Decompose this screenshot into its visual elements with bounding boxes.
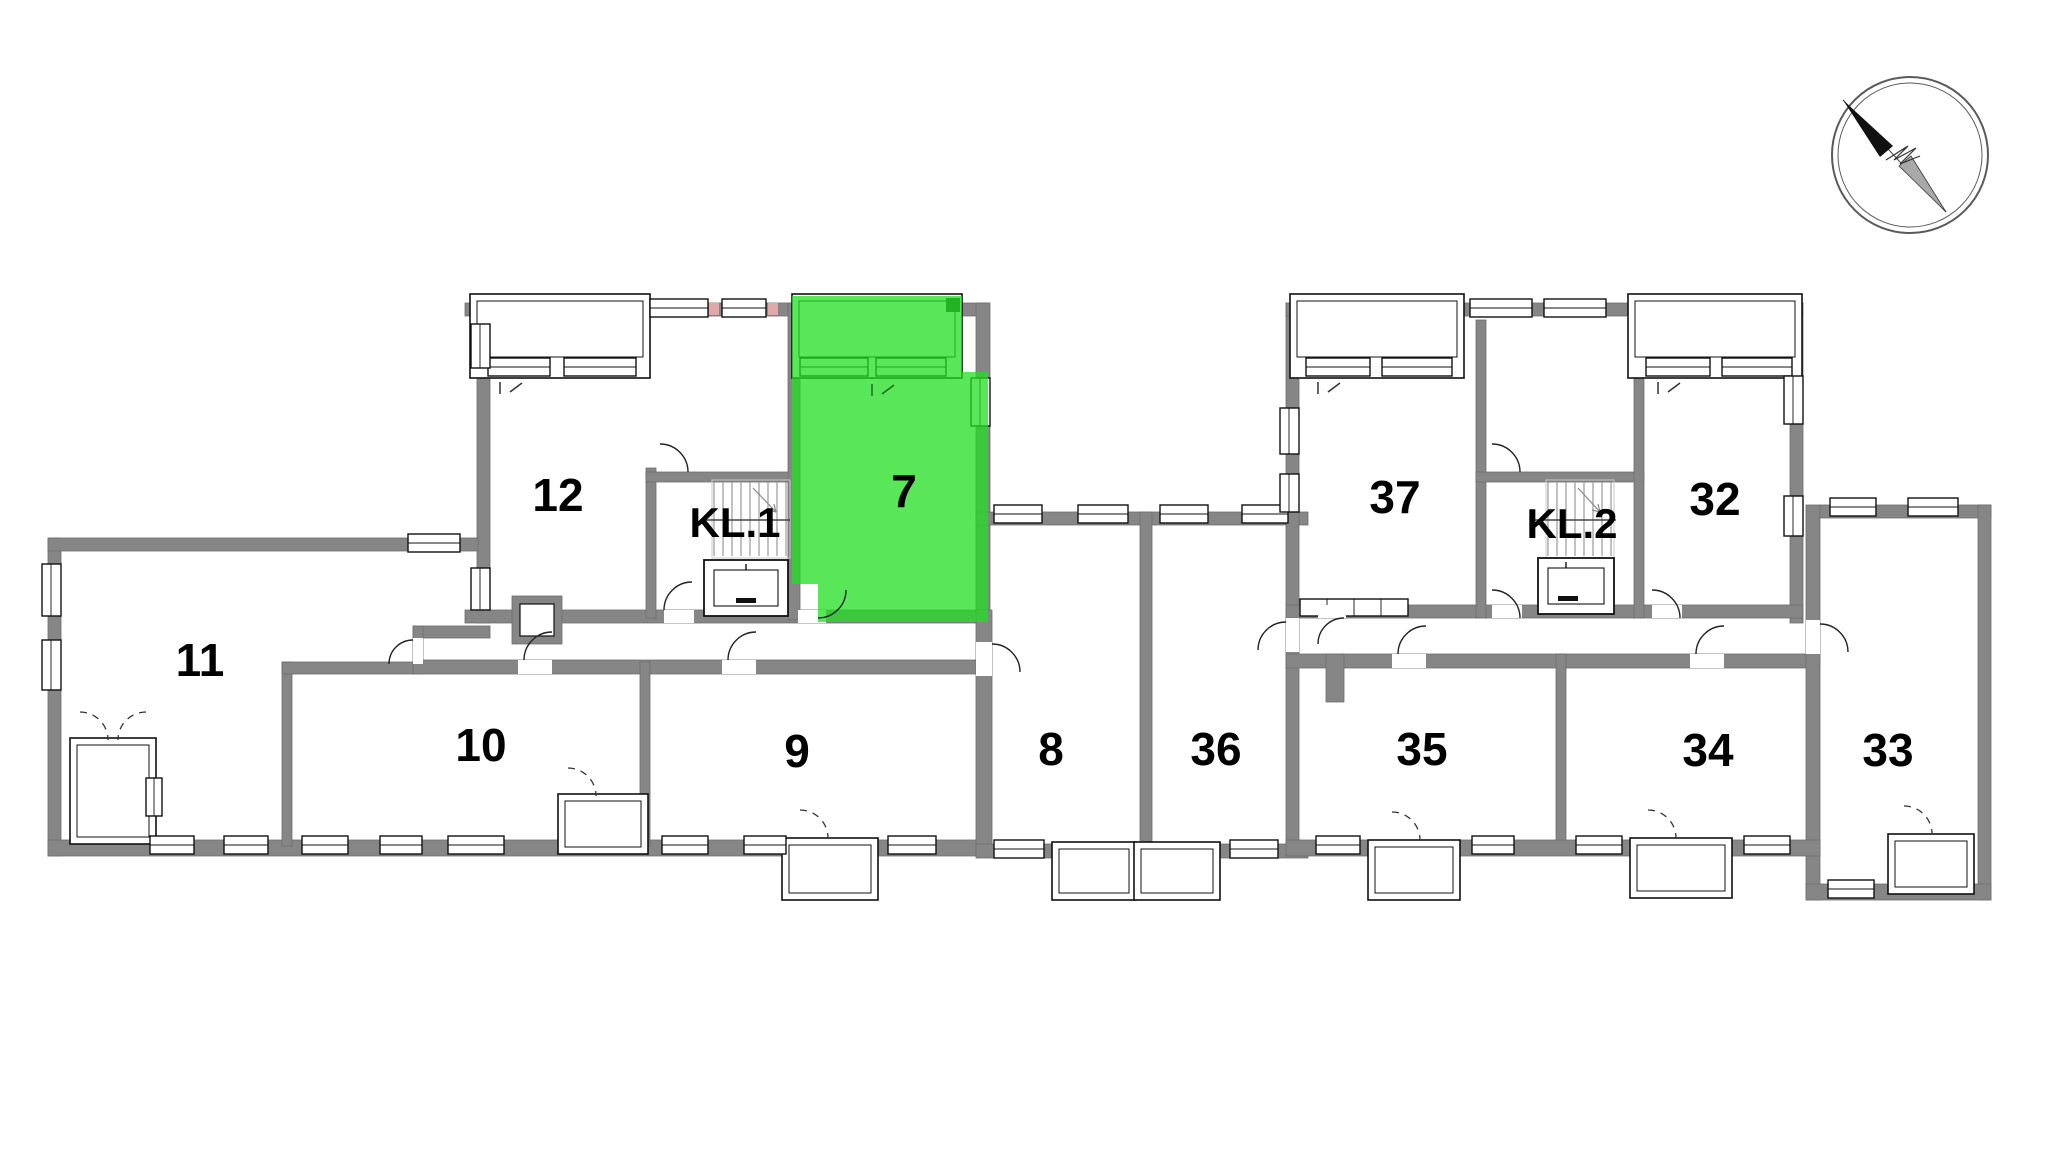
window	[1544, 299, 1606, 317]
window	[448, 836, 504, 854]
window	[650, 299, 708, 317]
window	[1470, 299, 1532, 317]
window	[1078, 505, 1128, 523]
balcony-unit-36	[1134, 842, 1220, 900]
window	[722, 299, 766, 317]
window	[1316, 836, 1360, 854]
floor-plan-canvas: 12 KL.1 7 11 10 9 8 36 37 KL.2 32 35 34 …	[0, 0, 2048, 1152]
unit-32-region[interactable]	[1646, 316, 1788, 604]
window	[380, 836, 422, 854]
window	[1472, 836, 1514, 854]
window	[42, 640, 61, 690]
window	[1280, 474, 1299, 512]
window	[302, 836, 348, 854]
unit-35-region[interactable]	[1300, 670, 1554, 838]
balcony-unit-8	[1052, 842, 1136, 900]
window	[1280, 408, 1299, 454]
window	[1230, 840, 1278, 858]
window	[1908, 498, 1958, 516]
unit-kl2-region	[1488, 482, 1632, 612]
window	[1160, 505, 1208, 523]
window	[1744, 836, 1790, 854]
unit-33-region[interactable]	[1822, 520, 1976, 882]
unit-kl1-region	[656, 482, 786, 614]
unit-12-region[interactable]	[478, 316, 644, 606]
window	[42, 564, 61, 616]
balcony-unit-35	[1368, 840, 1460, 900]
unit-34-region[interactable]	[1568, 670, 1804, 838]
window	[994, 840, 1044, 858]
window	[994, 505, 1042, 523]
window	[662, 836, 708, 854]
balcony-unit-34	[1630, 838, 1732, 898]
unit-8-region[interactable]	[992, 527, 1138, 842]
unit-36-region[interactable]	[1154, 527, 1284, 842]
window	[1828, 880, 1874, 898]
balcony-unit-9	[782, 838, 878, 900]
window	[1576, 836, 1622, 854]
window	[1830, 498, 1876, 516]
window	[224, 836, 268, 854]
window	[150, 836, 194, 854]
window	[408, 534, 460, 552]
window	[888, 836, 936, 854]
unit-37-region[interactable]	[1300, 316, 1474, 604]
window	[744, 836, 786, 854]
unit-11-region[interactable]	[66, 551, 280, 838]
unit-9-region[interactable]	[652, 676, 974, 838]
unit-10-region[interactable]	[292, 676, 638, 838]
unit-7-region[interactable]	[800, 306, 974, 610]
